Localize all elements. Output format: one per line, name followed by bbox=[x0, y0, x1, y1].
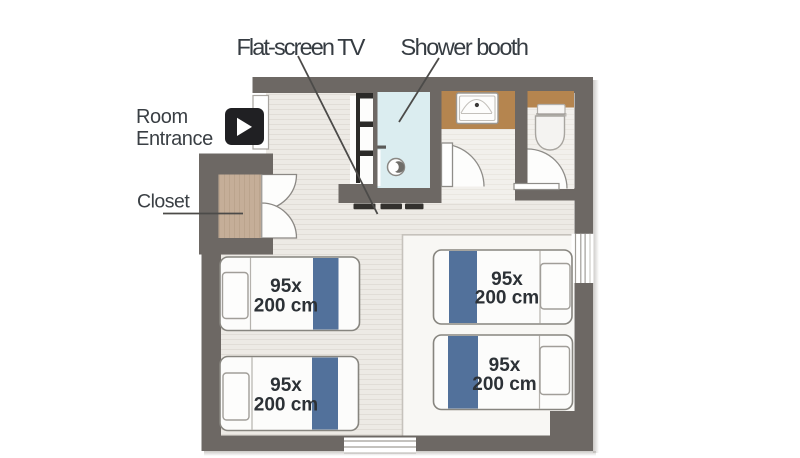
svg-text:200 cm: 200 cm bbox=[475, 288, 539, 309]
svg-text:Closet: Closet bbox=[137, 191, 190, 213]
svg-text:Entrance: Entrance bbox=[136, 128, 213, 150]
svg-text:Room: Room bbox=[136, 106, 188, 128]
svg-text:95x: 95x bbox=[270, 276, 302, 297]
svg-text:Flat-screen TV: Flat-screen TV bbox=[236, 34, 365, 60]
svg-text:200 cm: 200 cm bbox=[254, 296, 318, 317]
svg-text:95x: 95x bbox=[489, 355, 521, 376]
svg-text:Shower booth: Shower booth bbox=[400, 34, 527, 60]
svg-text:200 cm: 200 cm bbox=[472, 374, 536, 395]
svg-text:95x: 95x bbox=[270, 375, 302, 396]
svg-text:200 cm: 200 cm bbox=[254, 395, 318, 416]
